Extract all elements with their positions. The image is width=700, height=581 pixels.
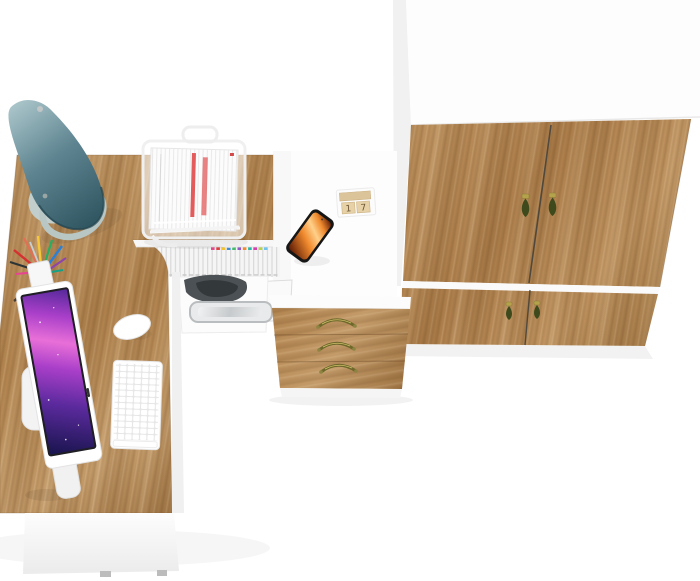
wardrobe-upper-doors-streaks [403, 119, 691, 287]
keyboard-keys [113, 363, 160, 440]
lamp-base-screw [43, 194, 48, 199]
wardrobe-lower-handle-right [534, 301, 540, 319]
block-calendar: 1 7 [336, 188, 376, 218]
wardrobe-shadow [396, 344, 653, 359]
paper-stack [149, 148, 238, 231]
calendar-digit-right: 7 [360, 203, 366, 213]
wardrobe [393, 0, 700, 346]
desk-foot-right [157, 570, 167, 576]
desk-return-white-top [272, 151, 397, 297]
wardrobe-upper-handle-right [549, 193, 557, 216]
render-canvas: 1 7 [0, 0, 700, 581]
keyboard-spacebar [113, 440, 157, 448]
furniture-render-scene: 1 7 [0, 0, 700, 581]
keyboard [110, 360, 162, 450]
lamp-hinge [37, 106, 43, 112]
wardrobe-lower-handle-left [506, 302, 512, 320]
drawer-pedestal [269, 295, 411, 398]
pedestal-base [280, 388, 402, 398]
desk-front-panel [23, 513, 179, 574]
paper-red-mark [230, 153, 234, 156]
printer-handle-bar [198, 307, 262, 317]
pedestal-top [269, 295, 411, 309]
wardrobe-top [406, 0, 700, 125]
desk-foot-left [100, 571, 111, 577]
wardrobe-upper-handle-left [522, 194, 530, 217]
document-stand [143, 127, 248, 249]
calendar-digit-left: 1 [345, 204, 351, 214]
